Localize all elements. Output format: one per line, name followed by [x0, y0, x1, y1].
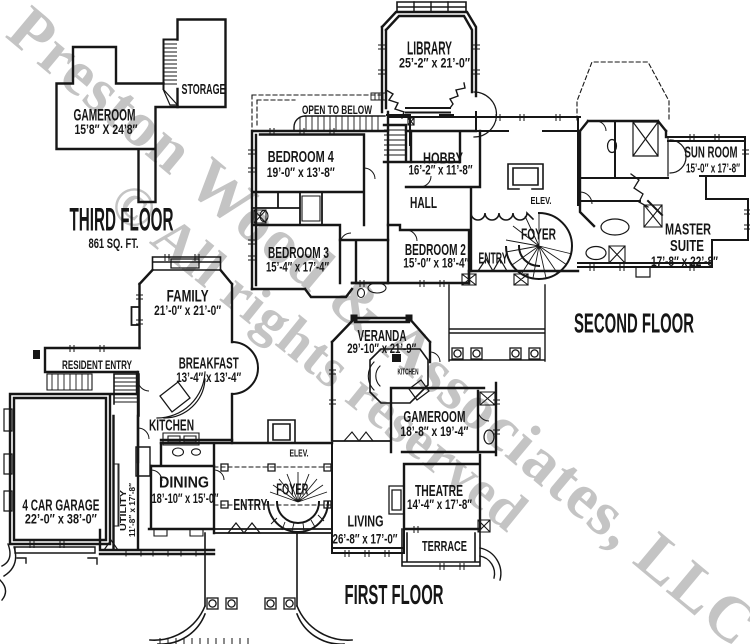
svg-text:22’-0″ x 38’-0″: 22’-0″ x 38’-0″	[25, 510, 97, 526]
svg-text:STORAGE: STORAGE	[182, 81, 226, 98]
svg-text:21’-0″ x 21’-0″: 21’-0″ x 21’-0″	[154, 302, 221, 318]
svg-text:15’-0″ x 18’-4″: 15’-0″ x 18’-4″	[403, 254, 469, 270]
svg-text:ENTRY: ENTRY	[233, 497, 267, 514]
svg-text:ELEV.: ELEV.	[531, 196, 552, 207]
svg-text:17’-8″ x 22’-8″: 17’-8″ x 22’-8″	[651, 253, 718, 269]
svg-text:LIVING: LIVING	[348, 513, 384, 530]
svg-text:15’-0″ x 17’-8″: 15’-0″ x 17’-8″	[686, 161, 740, 175]
svg-text:FOYER: FOYER	[521, 226, 556, 243]
svg-text:ENTRY: ENTRY	[479, 250, 508, 267]
svg-text:FOYER: FOYER	[276, 481, 308, 498]
svg-text:MASTER: MASTER	[665, 221, 711, 238]
svg-text:16’-2″ x 11’-8″: 16’-2″ x 11’-8″	[409, 162, 473, 178]
svg-text:HALL: HALL	[410, 195, 437, 212]
svg-text:18’-10″ x 15’-0″: 18’-10″ x 15’-0″	[152, 490, 219, 506]
svg-text:26’-8″ x 17’-0″: 26’-8″ x 17’-0″	[333, 531, 398, 547]
svg-text:SECOND FLOOR: SECOND FLOOR	[574, 308, 694, 339]
svg-text:861 SQ. FT.: 861 SQ. FT.	[89, 235, 139, 251]
svg-text:KITCHEN: KITCHEN	[398, 368, 419, 377]
svg-text:TERRACE: TERRACE	[422, 538, 467, 555]
svg-text:25’-2″ x 21’-0″: 25’-2″ x 21’-0″	[399, 55, 470, 71]
svg-text:KITCHEN: KITCHEN	[149, 417, 194, 434]
svg-text:13’-4″ x 13’-4″: 13’-4″ x 13’-4″	[176, 369, 241, 385]
svg-text:RESIDENT ENTRY: RESIDENT ENTRY	[62, 360, 132, 372]
svg-text:14’-4″ x 17’-8″: 14’-4″ x 17’-8″	[407, 496, 472, 512]
svg-text:19’-0″ x 13’-8″: 19’-0″ x 13’-8″	[267, 164, 335, 180]
svg-text:11’-8″ x 17’-8″: 11’-8″ x 17’-8″	[127, 483, 137, 537]
svg-text:THIRD FLOOR: THIRD FLOOR	[70, 202, 174, 238]
svg-text:SUN ROOM: SUN ROOM	[685, 144, 738, 161]
svg-text:15’-4″ x 17’-4″: 15’-4″ x 17’-4″	[266, 258, 329, 274]
svg-text:15’8″ X 24’8″: 15’8″ X 24’8″	[75, 122, 138, 137]
svg-text:18’-8″ x 19’-4″: 18’-8″ x 19’-4″	[400, 423, 468, 439]
svg-text:29’-10″ x 21’-9″: 29’-10″ x 21’-9″	[347, 340, 416, 356]
svg-text:FIRST FLOOR: FIRST FLOOR	[345, 579, 444, 610]
svg-text:ELEV.: ELEV.	[290, 449, 309, 460]
svg-text:OPEN TO BELOW: OPEN TO BELOW	[302, 105, 372, 117]
